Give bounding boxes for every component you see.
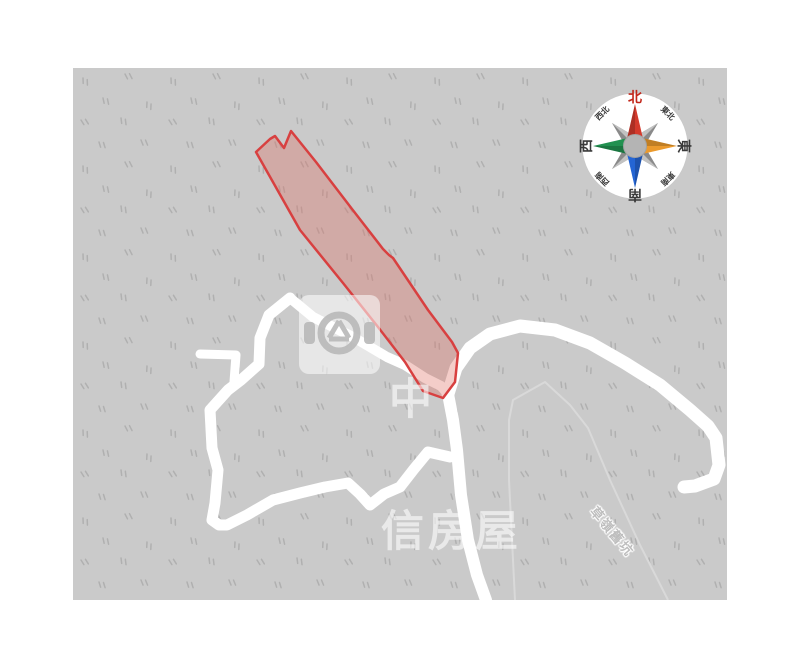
compass-label-south: 南	[628, 186, 642, 203]
watermark-logo-emblem	[299, 295, 380, 374]
compass-label-east: 東	[675, 139, 692, 153]
compass-rose: 北 東 南 西 東北 西北 東南 西南	[571, 82, 699, 210]
compass-label-north: 北	[628, 90, 642, 106]
watermark-text: 中 信房屋	[381, 290, 522, 600]
watermark-line2: 信房屋	[381, 510, 522, 554]
compass-label-west: 西	[579, 139, 595, 153]
watermark-logo	[299, 295, 380, 374]
compass-hub	[624, 135, 647, 158]
watermark-line1: 中	[381, 378, 522, 422]
